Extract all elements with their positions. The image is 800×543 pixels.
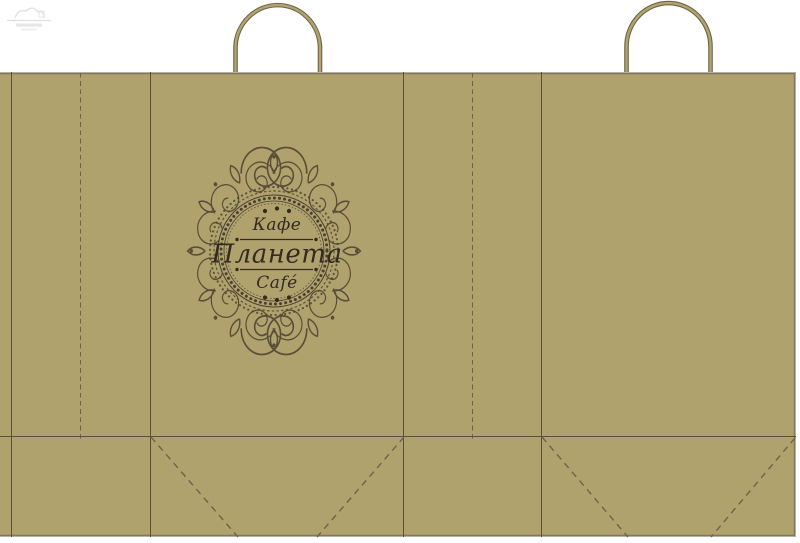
bag-dieline-canvas: Кафе Планета Café	[0, 0, 800, 543]
diagonal-fold-front-right	[317, 437, 404, 537]
cafe-planeta-logo: Кафе Планета Café	[160, 138, 390, 364]
diagonal-fold-front-left	[151, 437, 238, 537]
printer-watermark-icon	[3, 2, 55, 36]
watermark-subtext-blur	[21, 29, 37, 31]
diagonal-fold-back-right	[711, 438, 795, 537]
brand-bottom-text: Café	[256, 273, 298, 293]
brand-top-text: Кафе	[252, 215, 302, 235]
diagonal-fold-back-left	[542, 437, 628, 537]
brand-main-text: Планета	[211, 240, 343, 270]
bottom-fold-diagonals	[0, 0, 800, 543]
watermark-text-blur	[16, 24, 42, 27]
